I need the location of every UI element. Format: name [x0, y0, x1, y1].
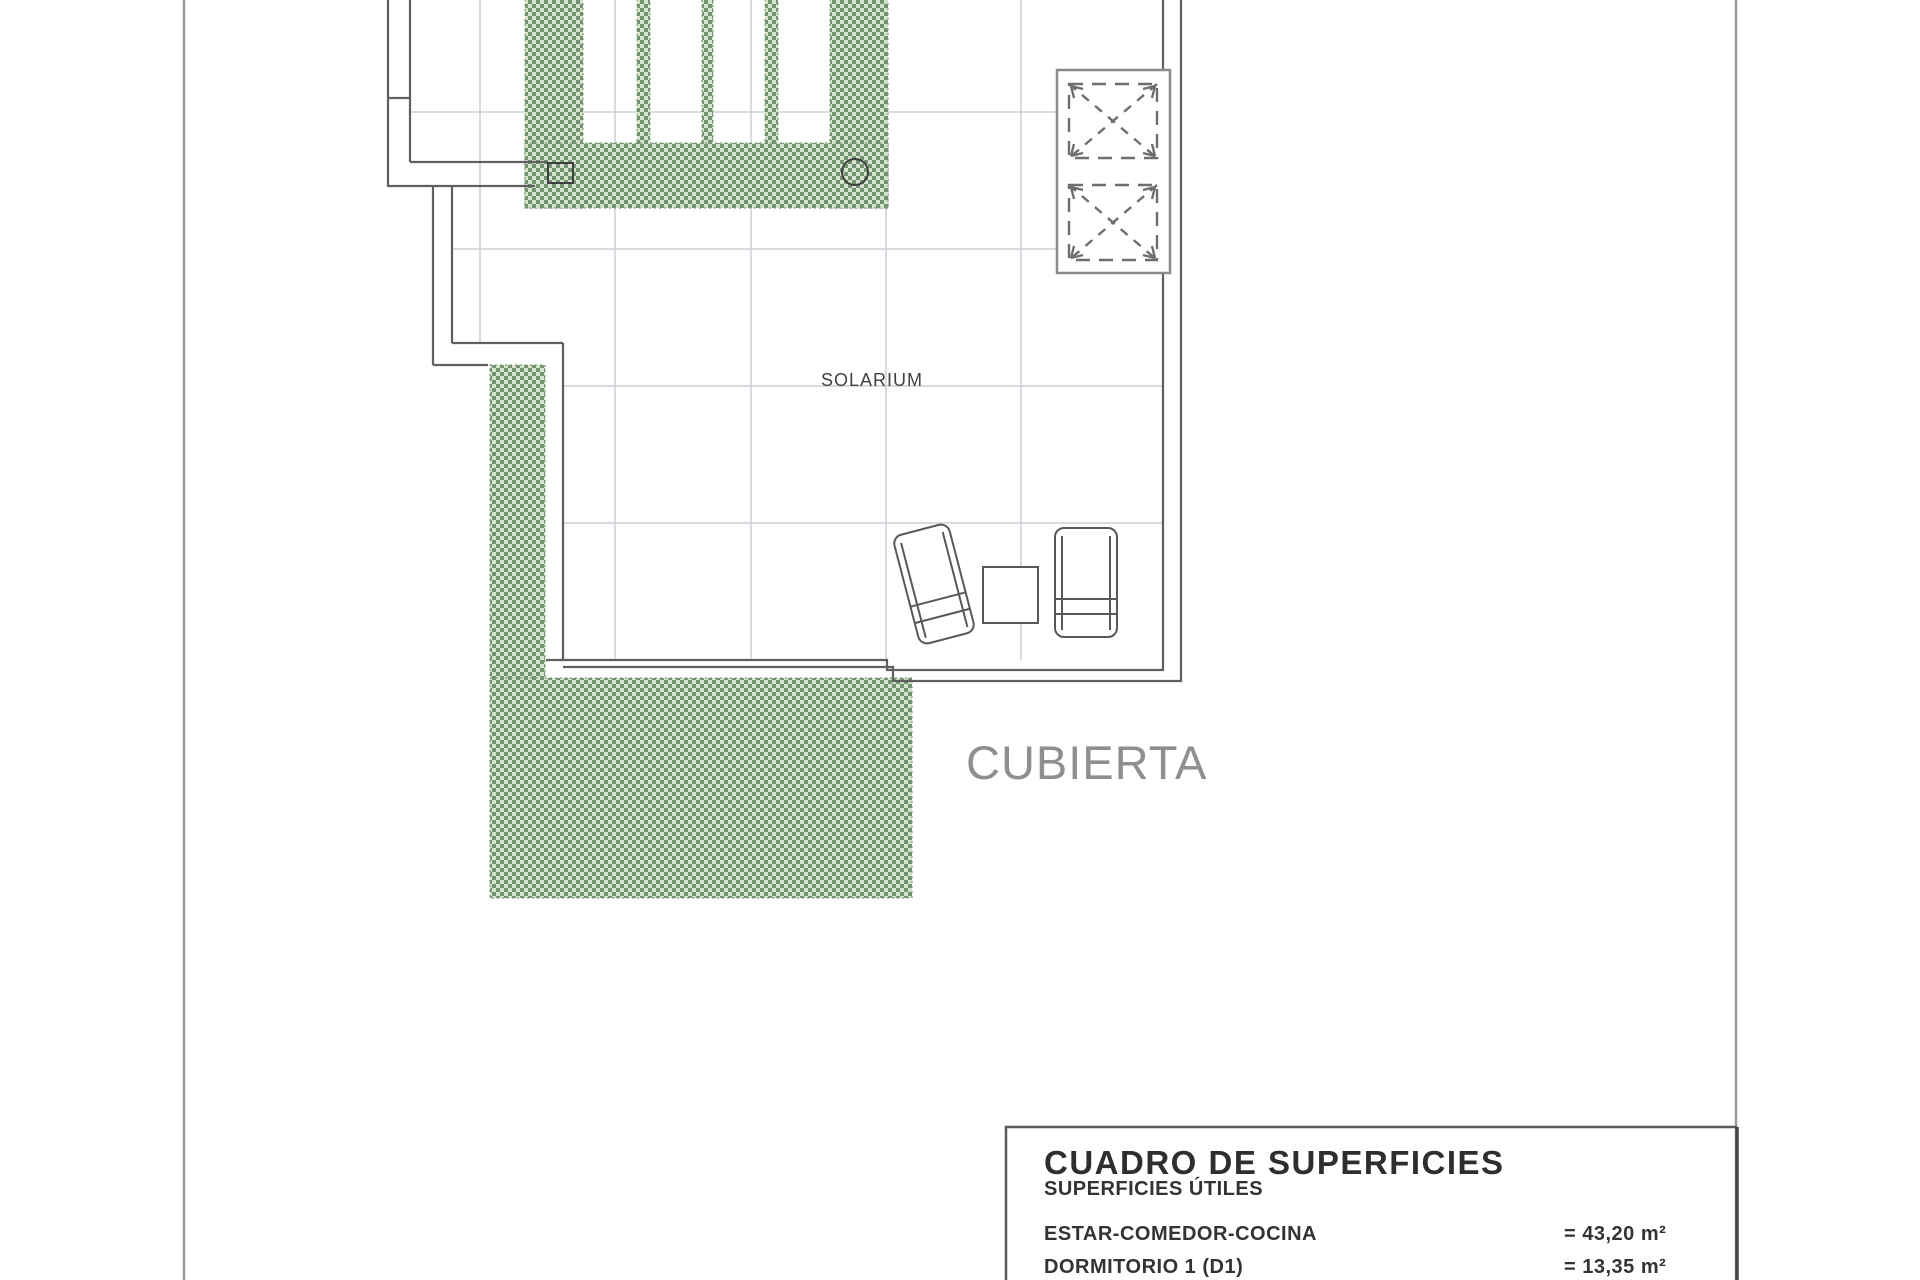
sun-lounger-tilted [892, 523, 975, 646]
surface-row-name: DORMITORIO 1 (D1) [1044, 1257, 1243, 1277]
solarium-label: SOLARIUM [821, 371, 923, 389]
skylight-frame [1057, 70, 1170, 273]
pergola-bottom-band [525, 143, 888, 208]
surface-row-name: ESTAR-COMEDOR-COCINA [1044, 1224, 1317, 1244]
pergola-slat-1 [637, 0, 650, 148]
garden-hatch [490, 365, 912, 898]
surface-row-value: = 43,20 m² [1564, 1224, 1666, 1244]
pergola-slat-3 [765, 0, 778, 148]
page-frame [184, 0, 1736, 1280]
surface-table-title: CUADRO DE SUPERFICIES [1044, 1146, 1505, 1179]
roof-plan-drawing [0, 0, 1920, 1280]
surface-table-subtitle: SUPERFICIES ÚTILES [1044, 1179, 1263, 1199]
pergola-hatch [525, 0, 888, 208]
pergola-slat-2 [702, 0, 713, 148]
sun-lounger-straight [1055, 528, 1117, 637]
surface-row-value: = 13,35 m² [1564, 1257, 1666, 1277]
garden-block [490, 678, 912, 898]
skylight-group [1057, 70, 1170, 273]
garden-strip [490, 365, 545, 678]
side-table [983, 567, 1038, 623]
drawing-sheet: SOLARIUM CUBIERTA CUADRO DE SUPERFICIES … [0, 0, 1920, 1280]
cubierta-label: CUBIERTA [966, 739, 1207, 786]
furniture-group [892, 523, 1117, 646]
